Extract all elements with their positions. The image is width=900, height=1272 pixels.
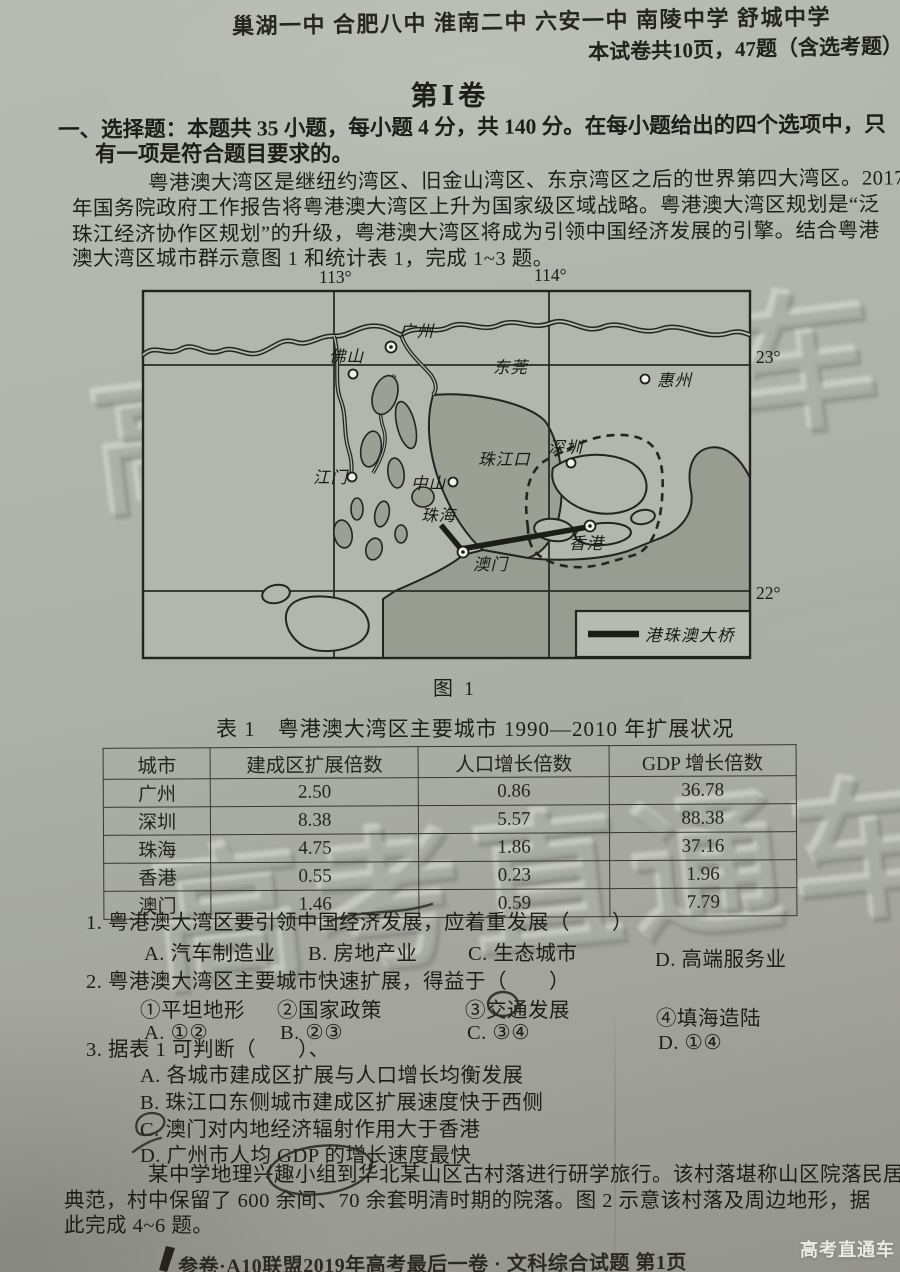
svg-text:东莞: 东莞 [493, 358, 530, 377]
col-city: 城市 [103, 748, 211, 780]
svg-text:22°: 22° [756, 583, 781, 603]
col-population: 人口增长倍数 [418, 746, 609, 778]
svg-text:广州: 广州 [399, 322, 436, 341]
q1-stem: 粤港澳大湾区要引领中国经济发展，应着重发展（ ） [108, 912, 633, 934]
svg-text:珠海: 珠海 [421, 506, 458, 525]
svg-text:惠州: 惠州 [657, 371, 694, 390]
cell-pop: 1.86 [419, 833, 610, 862]
table-row: 深圳 8.38 5.57 88.38 [103, 804, 796, 836]
cell-built: 2.50 [211, 778, 419, 807]
q2-item-2: ②国家政策 [277, 993, 382, 1023]
q2-option-d: D. ①④ [658, 1030, 722, 1055]
legend-bridge-label: 港珠澳大桥 [645, 626, 736, 645]
q1-option-d: D. 高端服务业 [655, 942, 787, 972]
svg-text:23°: 23° [756, 347, 781, 367]
table1-title: 表 1 粤港澳大湾区主要城市 1990—2010 年扩展状况 [216, 713, 734, 743]
table-row: 珠海 4.75 1.86 37.16 [104, 832, 797, 864]
q3-option-b: B. 珠江口东侧城市建成区扩展速度快于西侧 [140, 1085, 543, 1115]
cell-city: 香港 [104, 863, 212, 892]
footer-exam-line: 参卷·A10联盟2019年高考最后一卷 · 文科综合试题 第1页 [178, 1246, 687, 1272]
cell-pop: 0.23 [419, 861, 610, 890]
cell-gdp: 7.79 [610, 888, 797, 917]
header-paper-info: 本试卷共10页，47题（含选考题） [588, 30, 900, 67]
cell-pop: 5.57 [419, 805, 610, 834]
cell-pop: 0.86 [419, 777, 610, 806]
q2-item-4: ④填海造陆 [656, 1001, 761, 1031]
q3-number: 3. [86, 1039, 102, 1061]
cell-gdp: 36.78 [609, 776, 796, 805]
footer-ink-mark [159, 1246, 175, 1272]
q1-number: 1. [86, 912, 102, 934]
svg-text:深圳: 深圳 [548, 438, 585, 457]
map-figure: 佛山 广州 东莞 惠州 深圳 中山 江门 珠海 澳门 香港 珠江口 113° 1… [133, 263, 793, 665]
svg-text:114°: 114° [534, 265, 567, 285]
table-header-row: 城市 建成区扩展倍数 人口增长倍数 GDP 增长倍数 [103, 745, 796, 780]
figure1-caption: 图 1 [150, 672, 760, 701]
svg-text:江门: 江门 [313, 468, 350, 487]
cell-built: 8.38 [211, 806, 419, 835]
q1-option-b: B. 房地产业 [308, 936, 417, 966]
q2-option-c: C. ③④ [467, 1020, 530, 1045]
section-heading-line2: 有一项是符合题目要求的。 [95, 137, 353, 168]
cell-gdp: 88.38 [609, 804, 796, 833]
brand-watermark-text: 高考直通车 [800, 1236, 895, 1262]
q2-item-1: ①平坦地形 [140, 993, 245, 1023]
col-built-up: 建成区扩展倍数 [210, 747, 418, 779]
pearl-river-delta-map: 佛山 广州 东莞 惠州 深圳 中山 江门 珠海 澳门 香港 珠江口 113° 1… [133, 263, 793, 665]
svg-text:珠江口: 珠江口 [478, 450, 531, 469]
svg-text:香港: 香港 [569, 534, 606, 553]
closing-line3: 此完成 4~6 题。 [64, 1208, 213, 1238]
cell-city: 深圳 [103, 807, 211, 836]
svg-text:佛山: 佛山 [329, 347, 365, 366]
svg-text:中山: 中山 [411, 474, 447, 493]
cell-city: 珠海 [104, 835, 212, 864]
col-gdp: GDP 增长倍数 [609, 745, 796, 777]
exam-page: 高考直通车 高考直通车 巢湖一中 合肥八中 淮南二中 六安一中 南陵中学 舒城中… [0, 0, 900, 1272]
cell-city: 广州 [103, 779, 211, 808]
q2-stem: 粤港澳大湾区主要城市快速扩展，得益于（ ） [108, 971, 570, 993]
cell-gdp: 37.16 [609, 832, 796, 861]
q3-option-a: A. 各城市建成区扩展与人口增长均衡发展 [140, 1058, 524, 1088]
table-row: 香港 0.55 0.23 1.96 [104, 860, 797, 892]
cell-built: 0.55 [211, 862, 419, 891]
svg-text:113°: 113° [319, 267, 352, 287]
question-2: 2. 粤港澳大湾区主要城市快速扩展，得益于（ ） [86, 964, 570, 994]
svg-text:澳门: 澳门 [473, 555, 510, 574]
table-row: 广州 2.50 0.86 36.78 [103, 776, 796, 808]
question-1: 1. 粤港澳大湾区要引领中国经济发展，应着重发展（ ） [86, 905, 633, 935]
q1-option-c: C. 生态城市 [468, 936, 577, 966]
q2-number: 2. [86, 971, 102, 993]
expansion-table: 城市 建成区扩展倍数 人口增长倍数 GDP 增长倍数 广州 2.50 0.86 … [103, 744, 798, 920]
cell-gdp: 1.96 [610, 860, 797, 889]
map-legend: 港珠澳大桥 [576, 611, 750, 657]
q1-option-a: A. 汽车制造业 [144, 936, 276, 966]
paper-crease [614, 1000, 616, 1272]
cell-built: 4.75 [211, 834, 419, 863]
q2-item-3: ③交通发展 [465, 993, 570, 1023]
